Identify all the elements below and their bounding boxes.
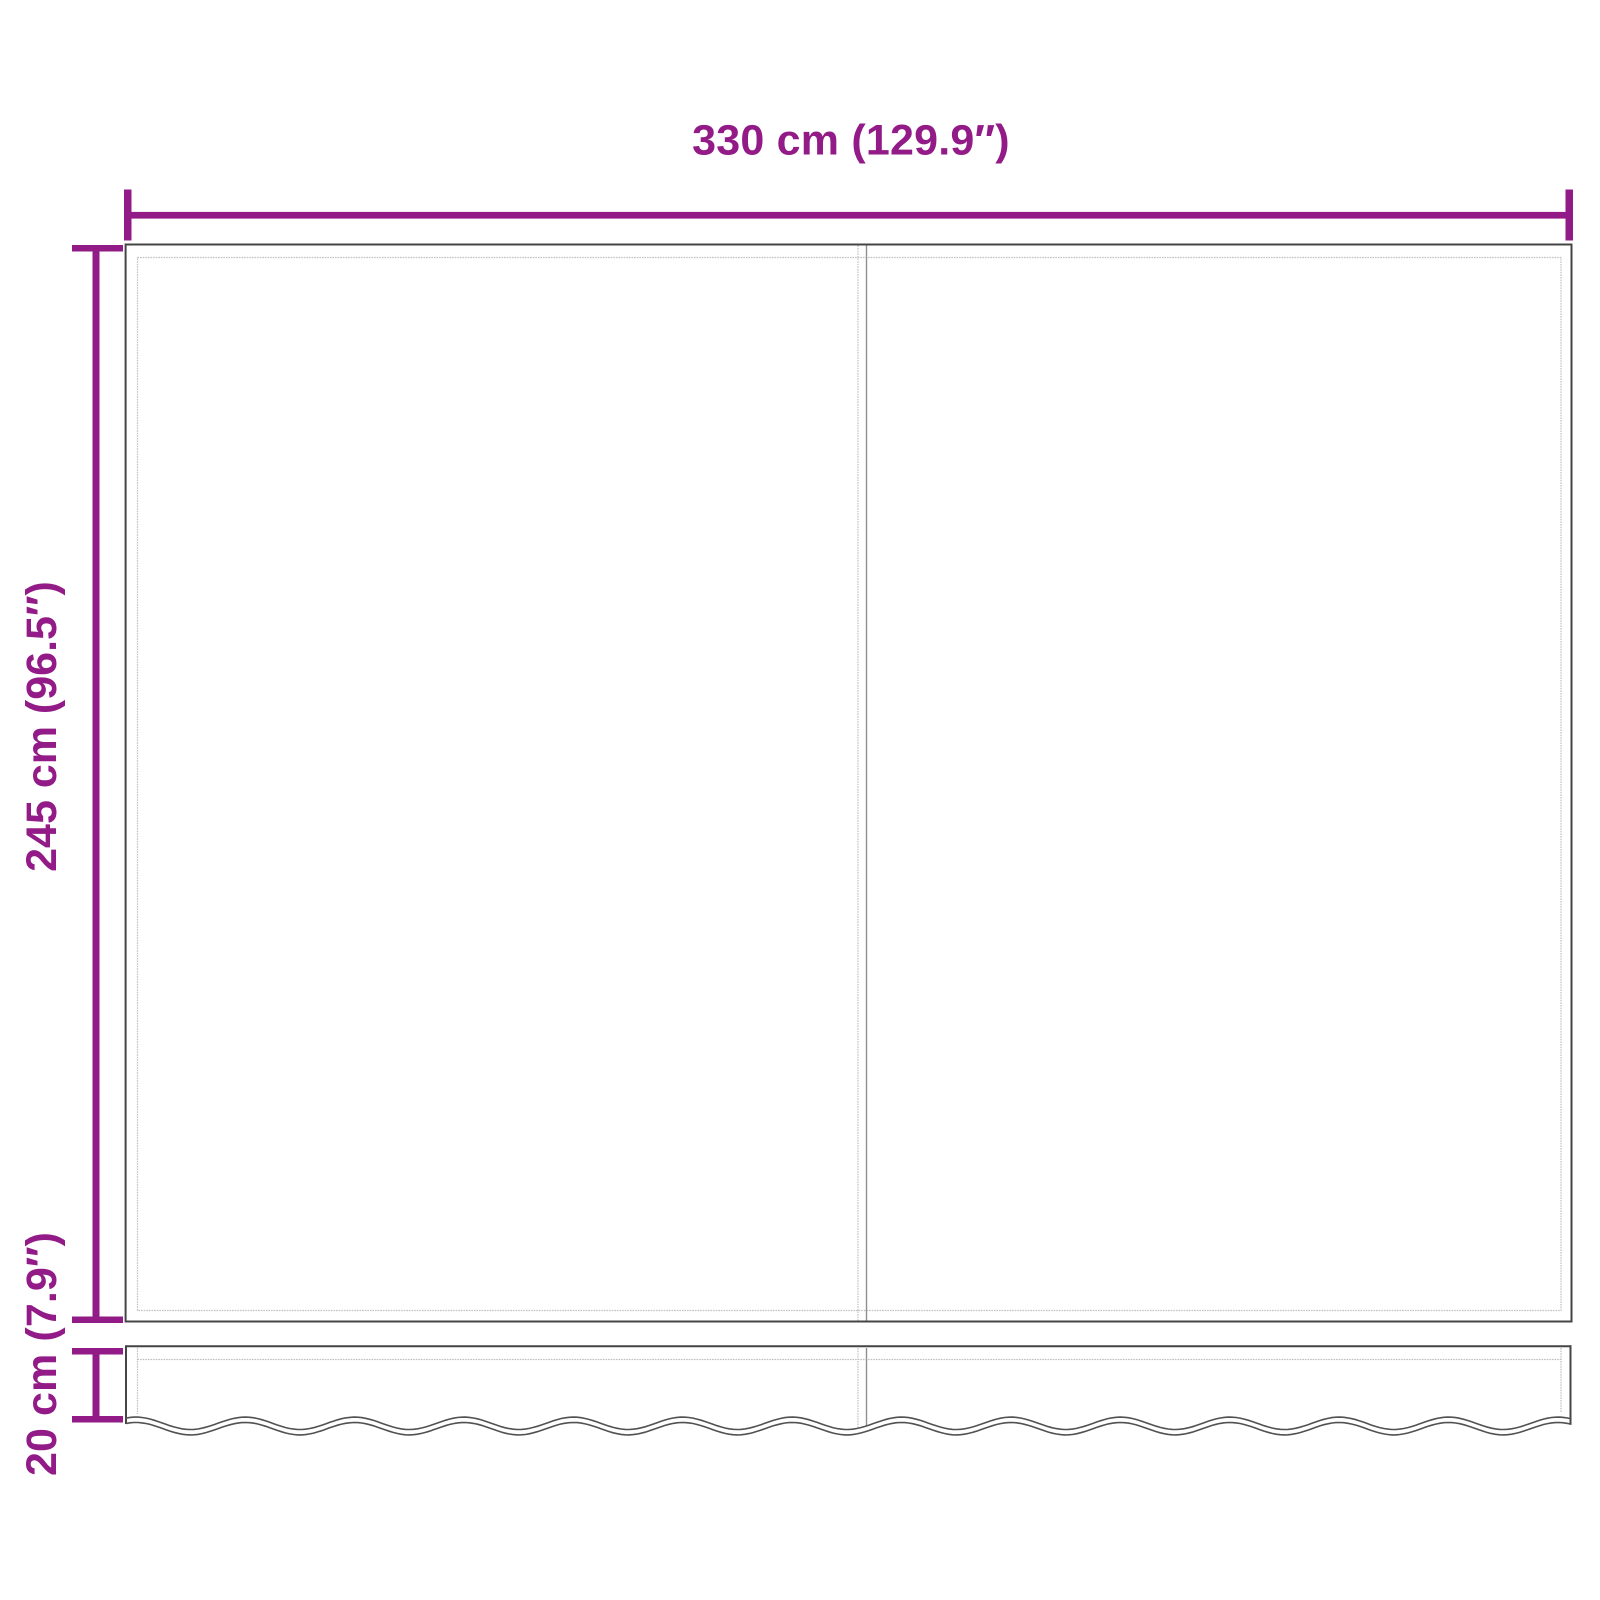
svg-text:20 cm (7.9″): 20 cm (7.9″) <box>18 1232 66 1476</box>
svg-text:330 cm (129.9″): 330 cm (129.9″) <box>692 117 1010 165</box>
svg-text:245 cm (96.5″): 245 cm (96.5″) <box>18 581 66 872</box>
